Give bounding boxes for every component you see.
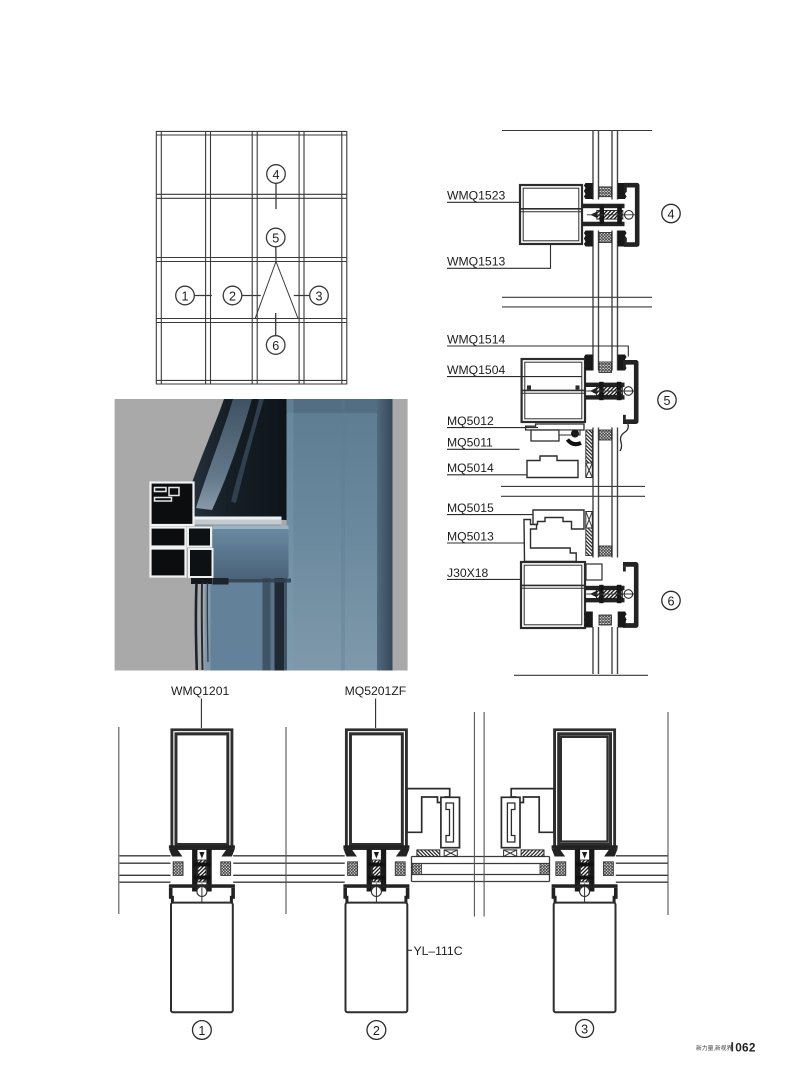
svg-text:3: 3 (315, 289, 322, 303)
svg-text:MQ5201ZF: MQ5201ZF (345, 684, 407, 698)
svg-text:WMQ1523: WMQ1523 (447, 189, 505, 203)
svg-text:MQ5015: MQ5015 (447, 501, 494, 515)
svg-text:MQ5012: MQ5012 (447, 414, 494, 428)
svg-text:4: 4 (667, 207, 674, 221)
svg-text:6: 6 (272, 339, 279, 353)
svg-text:WMQ1514: WMQ1514 (447, 333, 505, 347)
svg-text:MQ5013: MQ5013 (447, 530, 494, 544)
svg-text:1: 1 (181, 289, 188, 303)
svg-text:062: 062 (735, 1040, 756, 1054)
svg-text:6: 6 (667, 594, 674, 608)
svg-text:2: 2 (373, 1024, 380, 1038)
svg-text:WMQ1201: WMQ1201 (171, 684, 229, 698)
svg-text:YL–111C: YL–111C (414, 944, 463, 958)
svg-text:新力量,新视界: 新力量,新视界 (696, 1044, 733, 1052)
svg-text:4: 4 (272, 168, 279, 182)
svg-text:MQ5014: MQ5014 (447, 461, 494, 475)
svg-text:5: 5 (663, 394, 670, 408)
svg-text:1: 1 (198, 1024, 205, 1038)
svg-text:5: 5 (272, 231, 279, 245)
svg-text:WMQ1504: WMQ1504 (447, 363, 505, 377)
svg-text:3: 3 (581, 1022, 588, 1036)
svg-text:WMQ1513: WMQ1513 (447, 255, 505, 269)
svg-text:2: 2 (229, 289, 236, 303)
svg-text:MQ5011: MQ5011 (447, 436, 493, 450)
svg-text:J30X18: J30X18 (447, 566, 489, 580)
